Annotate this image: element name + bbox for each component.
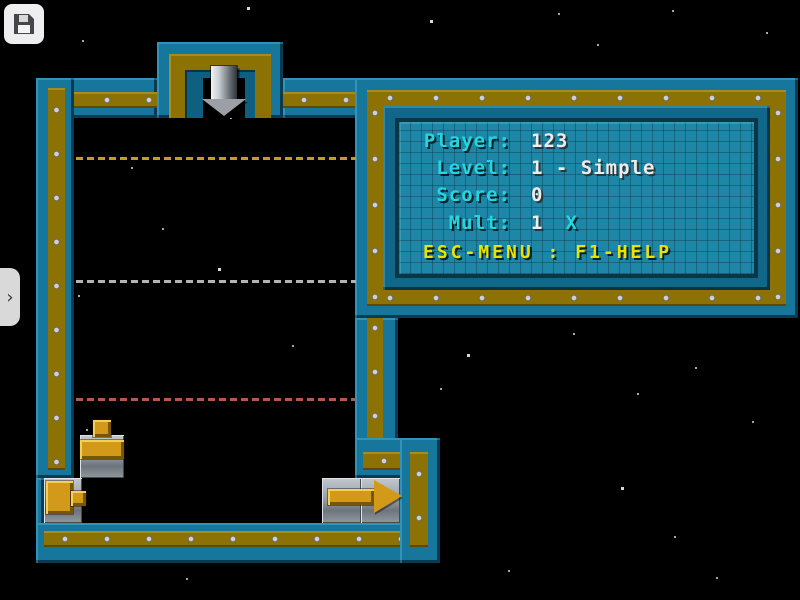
mult-value: 1 <box>531 213 543 233</box>
player-value: 123 <box>531 131 568 151</box>
frame-band-left <box>48 88 65 470</box>
sidebar-toggle-tab[interactable]: › <box>0 268 20 326</box>
chevron-right-icon: › <box>6 287 13 308</box>
floppy-label <box>18 25 30 33</box>
right-arrow-icon <box>374 480 402 513</box>
drop-arrow-indicator <box>202 66 246 118</box>
source-body <box>46 481 73 514</box>
level-value: 1 - Simple <box>531 158 655 178</box>
exit-arrow-shaft <box>328 489 374 505</box>
hud: Player: 123 Level: 1 - Simple Score: 0 M… <box>395 118 758 278</box>
score-label: Score: <box>399 185 511 205</box>
floppy-save-icon <box>14 14 34 34</box>
frame-band-right <box>367 306 383 456</box>
hud-footer-help: ESC-MENU : F1-HELP <box>423 242 672 263</box>
source-stub <box>71 491 86 506</box>
panel-rivets-left <box>367 90 383 306</box>
game-screen: Player: 123 Level: 1 - Simple Score: 0 M… <box>0 0 800 600</box>
hud-row-level: Level: 1 - Simple <box>399 157 754 179</box>
save-button[interactable] <box>4 4 44 44</box>
floppy-shutter <box>19 15 28 22</box>
hud-row-score: Score: 0 <box>399 184 754 206</box>
status-panel: Player: 123 Level: 1 - Simple Score: 0 M… <box>355 78 798 318</box>
source-block[interactable] <box>44 478 82 523</box>
mult-label: Mult: <box>399 213 511 233</box>
pipe-piece-t[interactable] <box>80 435 124 478</box>
hud-row-mult: Mult: 1 X <box>399 212 754 234</box>
frame-band-notch <box>410 452 428 547</box>
down-arrow-head <box>202 99 246 116</box>
player-label: Player: <box>399 131 511 151</box>
exit-arrow <box>326 480 402 513</box>
frame-band-bottom <box>44 531 434 547</box>
panel-rivets-bottom <box>367 290 786 306</box>
level-label: Level: <box>399 158 511 178</box>
mult-suffix: X <box>565 213 577 233</box>
t-pipe-stub <box>93 420 111 437</box>
panel-rivets-top <box>367 90 786 106</box>
hud-row-player: Player: 123 <box>399 130 754 152</box>
panel-rivets-right <box>770 90 786 306</box>
score-value: 0 <box>531 185 543 205</box>
t-pipe-bar <box>80 440 124 459</box>
down-arrow-icon <box>211 66 237 99</box>
